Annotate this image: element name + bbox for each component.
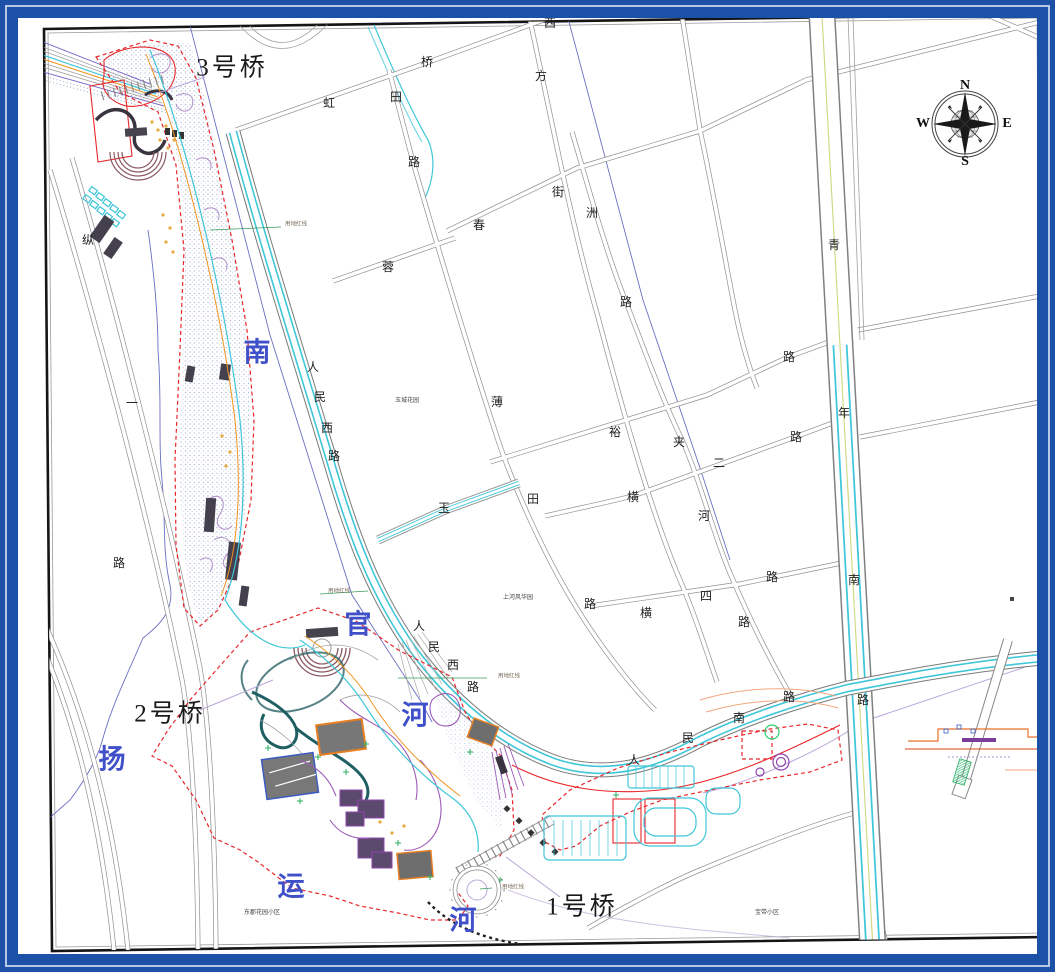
site-plan-drawing — [0, 0, 1055, 972]
compass-rose-icon — [932, 91, 998, 157]
site-plan-page: 3号桥2号桥1号桥南官河扬运河西桥方虹田路街洲春青蓉路纵一路路年薄裕夹路二玉田横… — [0, 0, 1055, 972]
